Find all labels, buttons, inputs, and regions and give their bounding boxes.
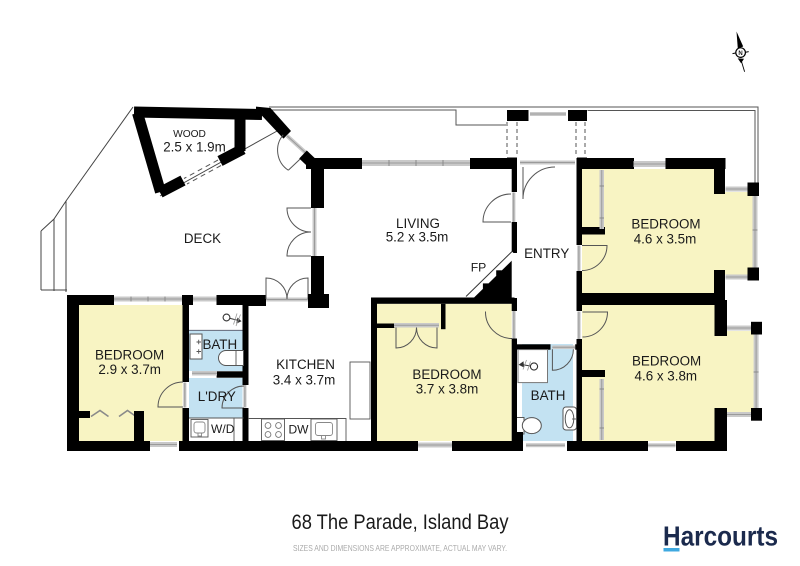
svg-text:BEDROOM: BEDROOM (631, 216, 700, 231)
svg-text:DECK: DECK (184, 231, 221, 246)
svg-text:FP: FP (471, 260, 487, 274)
svg-text:Harcourts: Harcourts (663, 521, 778, 552)
svg-text:W/D: W/D (211, 422, 235, 436)
svg-text:3.7 x 3.8m: 3.7 x 3.8m (416, 381, 479, 396)
svg-text:L'DRY: L'DRY (198, 389, 236, 404)
svg-text:3.4 x 3.7m: 3.4 x 3.7m (273, 372, 336, 387)
svg-text:ENTRY: ENTRY (524, 246, 569, 261)
svg-text:2.9 x 3.7m: 2.9 x 3.7m (98, 362, 161, 377)
svg-text:BEDROOM: BEDROOM (632, 353, 701, 368)
svg-text:4.6 x 3.5m: 4.6 x 3.5m (634, 232, 697, 247)
svg-text:KITCHEN: KITCHEN (276, 357, 335, 372)
svg-text:N: N (738, 51, 742, 57)
svg-text:BEDROOM: BEDROOM (412, 367, 481, 382)
svg-text:BATH: BATH (531, 388, 566, 403)
svg-text:2.5 x 1.9m: 2.5 x 1.9m (163, 139, 226, 154)
svg-text:68 The Parade, Island Bay: 68 The Parade, Island Bay (292, 511, 509, 534)
svg-text:SIZES AND DIMENSIONS ARE APPRO: SIZES AND DIMENSIONS ARE APPROXIMATE, AC… (293, 543, 507, 553)
svg-text:BEDROOM: BEDROOM (95, 348, 164, 363)
svg-text:DW: DW (289, 422, 310, 436)
svg-text:4.6 x 3.8m: 4.6 x 3.8m (635, 368, 698, 383)
svg-text:BATH: BATH (202, 337, 237, 352)
svg-text:5.2 x 3.5m: 5.2 x 3.5m (386, 229, 449, 244)
